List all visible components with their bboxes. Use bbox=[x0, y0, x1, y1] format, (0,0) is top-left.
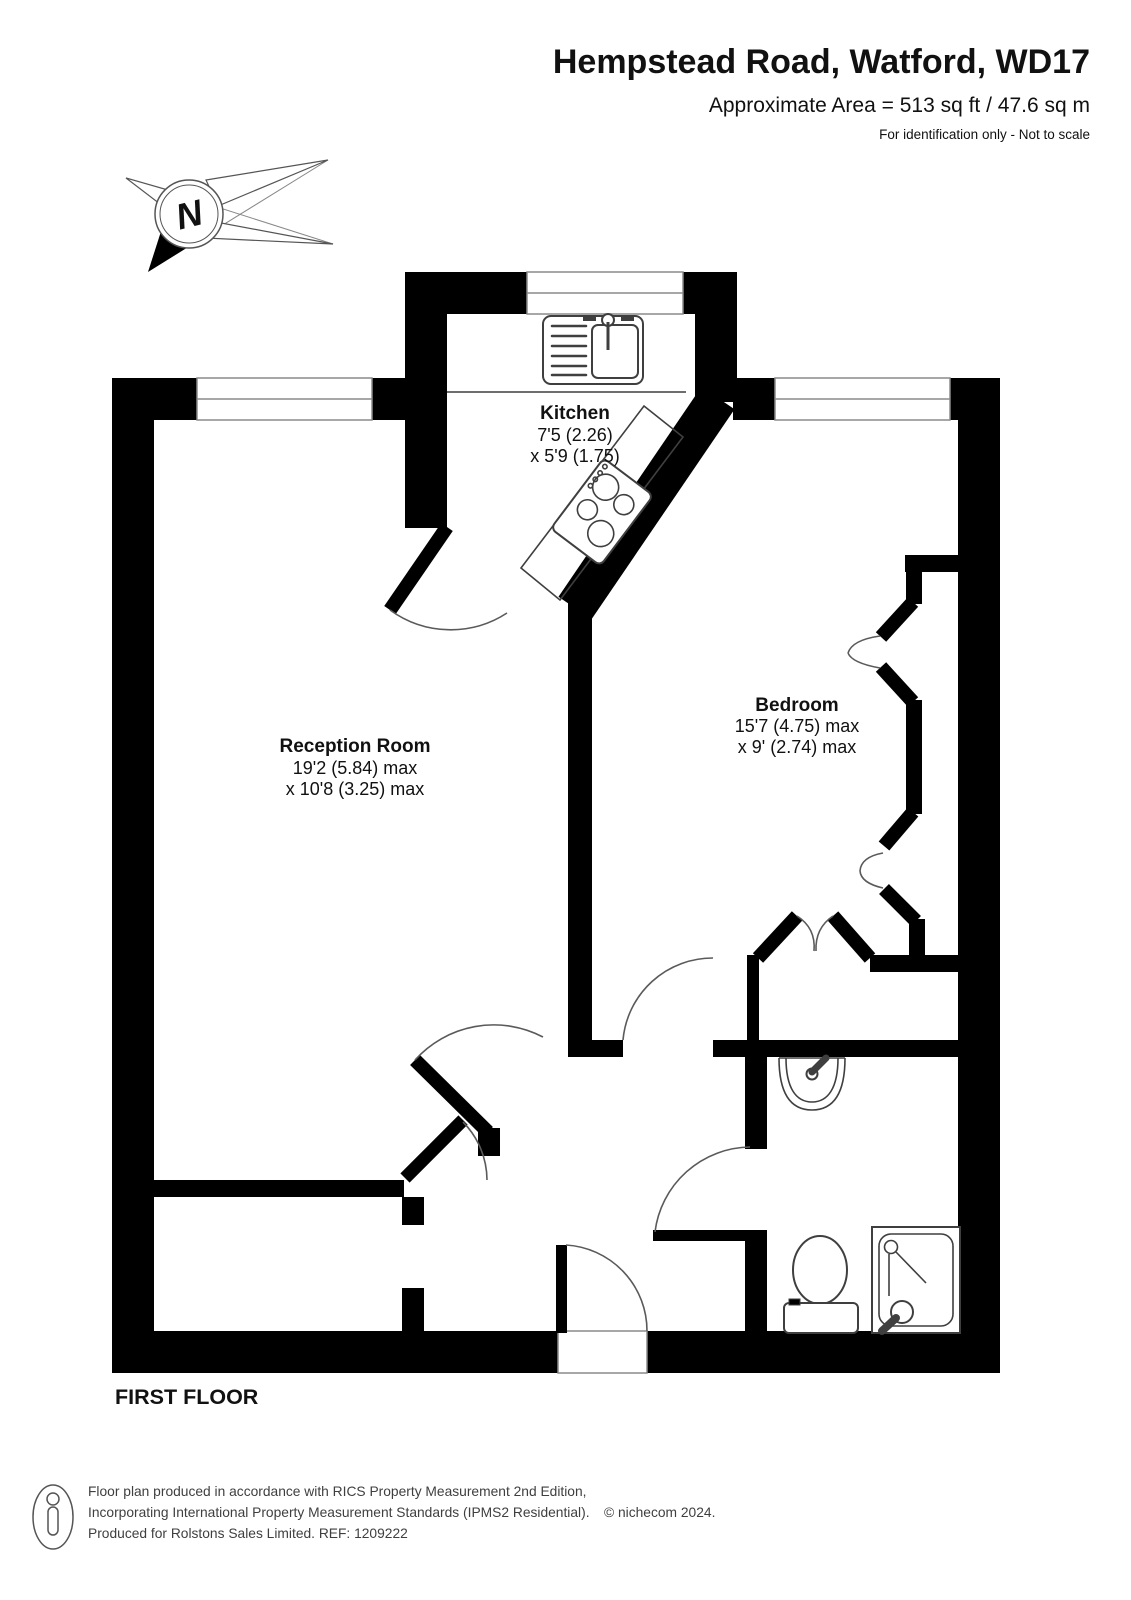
floorplan-svg: Hempstead Road, Watford, WD17 Approximat… bbox=[0, 0, 1131, 1600]
bedroom-window bbox=[775, 378, 950, 420]
kitchen-sink-icon bbox=[543, 314, 643, 384]
room-dim2: x 10'8 (3.25) max bbox=[286, 779, 425, 799]
footer-line-2: Incorporating International Property Mea… bbox=[88, 1505, 590, 1520]
room-dim1: 15'7 (4.75) max bbox=[735, 716, 860, 736]
shower-icon bbox=[872, 1227, 960, 1333]
room-name: Reception Room bbox=[280, 736, 431, 757]
room-dim2: x 5'9 (1.75) bbox=[530, 446, 619, 466]
kitchen-label: Kitchen 7'5 (2.26) x 5'9 (1.75) bbox=[530, 403, 619, 466]
disclaimer-text: For identification only - Not to scale bbox=[879, 127, 1090, 142]
floor-label: FIRST FLOOR bbox=[115, 1385, 259, 1409]
room-dim1: 19'2 (5.84) max bbox=[293, 758, 418, 778]
floorplan-page: Hempstead Road, Watford, WD17 Approximat… bbox=[0, 0, 1131, 1600]
footer-line-3: Produced for Rolstons Sales Limited. REF… bbox=[88, 1526, 408, 1541]
room-name: Bedroom bbox=[755, 695, 838, 716]
reception-room-label: Reception Room 19'2 (5.84) max x 10'8 (3… bbox=[280, 736, 431, 799]
entrance-threshold bbox=[558, 1331, 647, 1373]
approximate-area-text: Approximate Area = 513 sq ft / 47.6 sq m bbox=[709, 94, 1090, 117]
page-title: Hempstead Road, Watford, WD17 bbox=[553, 43, 1090, 81]
room-name: Kitchen bbox=[540, 403, 610, 424]
kitchen-window bbox=[527, 272, 683, 314]
footer-line-1: Floor plan produced in accordance with R… bbox=[88, 1484, 586, 1499]
footer-copyright: © nichecom 2024. bbox=[604, 1505, 715, 1520]
room-dim1: 7'5 (2.26) bbox=[537, 425, 612, 445]
room-dim2: x 9' (2.74) max bbox=[738, 737, 856, 757]
reception-window bbox=[197, 378, 372, 420]
